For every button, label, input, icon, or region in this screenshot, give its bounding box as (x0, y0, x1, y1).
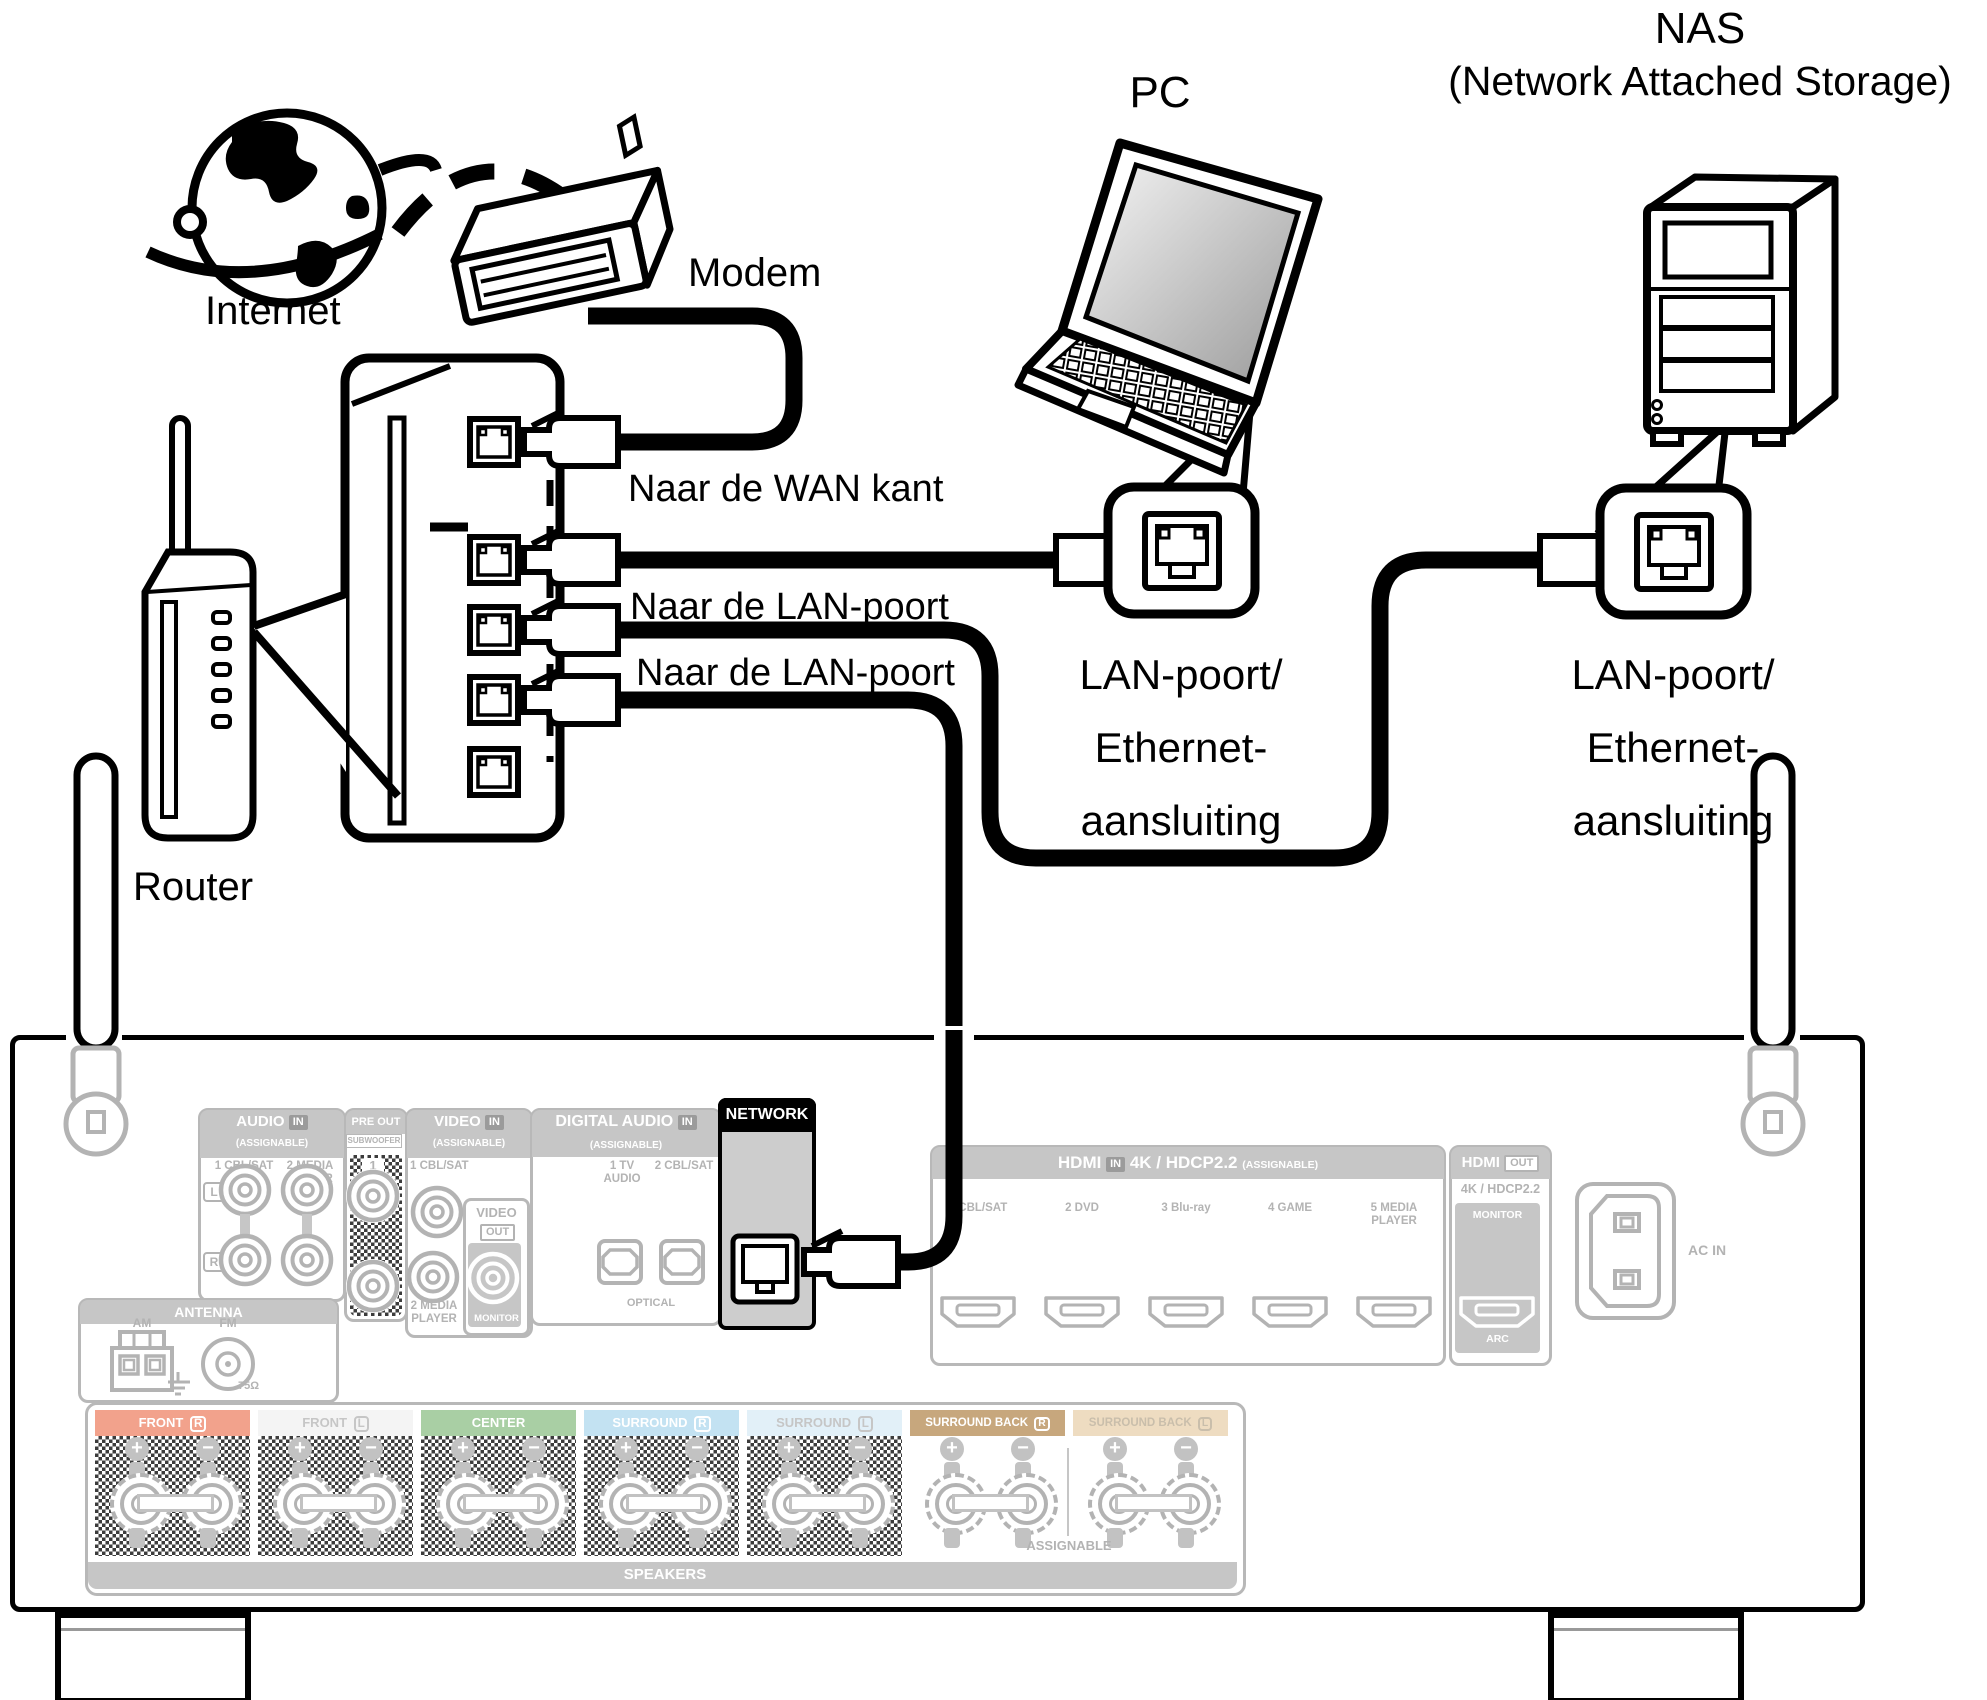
binding-post-cap: − (848, 1437, 872, 1461)
speaker-header-front-r: FRONT R (95, 1410, 250, 1436)
digital-audio-badge: IN (678, 1115, 697, 1130)
video-in-assignable: (ASSIGNABLE) (433, 1138, 505, 1149)
internet-label: Internet (205, 288, 341, 334)
hdmi-in-port-label-5: 5 MEDIA PLAYER (1342, 1202, 1446, 1228)
antenna-section: ANTENNA (78, 1298, 339, 1403)
audio-in2-label: 2 MEDIA PLAYER (280, 1160, 340, 1186)
post-link-bar (789, 1494, 866, 1512)
post-link-bar (626, 1494, 703, 1512)
speakers-assignable-label: ASSIGNABLE (910, 1538, 1228, 1553)
digital-in1-label: 1 TV AUDIO (592, 1160, 652, 1186)
hdmi-in-section: HDMI IN 4K / HDCP2.2 (ASSIGNABLE) (930, 1145, 1446, 1366)
binding-post-neck (363, 1528, 379, 1548)
optical-label: OPTICAL (605, 1297, 697, 1309)
post-link-bar (1115, 1494, 1192, 1512)
pre-out-2-label: 2 (362, 1294, 384, 1310)
speaker-terminals-center: +− (421, 1436, 576, 1556)
hdmi-out-spec: 4K / HDCP2.2 (1452, 1182, 1549, 1196)
video-out-title: VIDEO (466, 1205, 527, 1220)
plug-nas (1540, 529, 1634, 584)
hdmi-out-badge: OUT (1504, 1155, 1539, 1172)
hdmi-out-title: HDMI (1462, 1154, 1500, 1171)
speaker-terminals-surround-r: +− (584, 1436, 739, 1556)
antenna-am-label: AM (112, 1316, 172, 1330)
to-lan-label-1: Naar de LAN-poort (630, 584, 949, 630)
nas-subtitle: (Network Attached Storage) (1420, 58, 1980, 104)
binding-post-cap: + (451, 1437, 475, 1461)
pre-out-title: PRE OUT (346, 1110, 406, 1134)
modem-label: Modem (688, 250, 821, 296)
video-monitor-label: MONITOR (466, 1313, 527, 1324)
audio-in1-label: 1 CBL/SAT (204, 1160, 284, 1172)
binding-post-neck (200, 1528, 216, 1548)
video-out-subsection: VIDEO OUT MONITOR (463, 1198, 530, 1336)
nas-icon (1647, 177, 1835, 494)
plug-lan1 (524, 529, 618, 584)
post-link-bar (952, 1494, 1029, 1512)
hdmi-in-port-label-2: 2 DVD (1030, 1202, 1134, 1215)
binding-post-cap: − (359, 1437, 383, 1461)
router-icon (145, 418, 253, 838)
receiver-foot-left (55, 1612, 251, 1700)
router-ports (470, 419, 518, 795)
ac-in-label: AC IN (1688, 1242, 1758, 1258)
pc-callout-label: LAN-poort/ Ethernet- aansluiting (1056, 638, 1306, 857)
digital-in2-label: 2 CBL/SAT (652, 1160, 716, 1172)
internet-globe-icon (148, 113, 436, 303)
antenna-ohm-label: 75Ω (238, 1380, 278, 1392)
plug-wan (524, 411, 618, 466)
wireless-link-dashes (398, 171, 600, 232)
audio-left-badge: L (203, 1182, 225, 1202)
digital-audio-assignable: (ASSIGNABLE) (590, 1140, 662, 1151)
video-in-title: VIDEO (434, 1113, 481, 1130)
binding-post-cap: + (940, 1437, 964, 1461)
audio-in-badge: IN (289, 1115, 308, 1130)
binding-post-cap: + (777, 1437, 801, 1461)
binding-post-neck (618, 1528, 634, 1548)
hdmi-in-port-label-1: 1 CBL/SAT (926, 1202, 1030, 1215)
audio-in-section: AUDIO IN (ASSIGNABLE) (198, 1108, 346, 1302)
modem-icon (432, 115, 680, 324)
network-connection-diagram: AUDIO IN (ASSIGNABLE) 1 CBL/SAT 2 MEDIA … (0, 0, 1987, 1700)
pre-out-1-label: 1 (362, 1158, 384, 1174)
hdmi-out-section: HDMI OUT 4K / HDCP2.2 MONITOR ARC (1449, 1145, 1552, 1366)
speakers-footer-label: SPEAKERS (600, 1566, 730, 1583)
subwoofer-label: SUBWOOFER (346, 1134, 402, 1148)
video-in-badge: IN (485, 1115, 504, 1130)
router-rear-icon (254, 358, 560, 838)
pc-laptop-icon (1018, 143, 1318, 494)
nas-callout-label: LAN-poort/ Ethernet- aansluiting (1548, 638, 1798, 857)
hdmi-in-badge: IN (1106, 1157, 1125, 1172)
binding-post-cap: + (614, 1437, 638, 1461)
hdmi-out-arc-label: ARC (1455, 1333, 1540, 1345)
assignable-divider (1067, 1448, 1069, 1536)
pc-lan-port-icon (1108, 487, 1255, 614)
binding-post-neck (689, 1528, 705, 1548)
network-title: NETWORK (718, 1098, 816, 1132)
speaker-terminals-surround-l: +− (747, 1436, 902, 1556)
speaker-header-front-l: FRONT L (258, 1410, 413, 1436)
binding-post-neck (526, 1528, 542, 1548)
binding-post-cap: + (288, 1437, 312, 1461)
speaker-terminals-front-r: +− (95, 1436, 250, 1556)
plug-lan3 (524, 669, 618, 724)
audio-right-badge: R (203, 1252, 225, 1272)
to-lan-label-2: Naar de LAN-poort (636, 650, 955, 696)
network-section (718, 1098, 816, 1330)
plug-pc (1056, 529, 1150, 584)
to-wan-label: Naar de WAN kant (628, 466, 943, 512)
speaker-header-surround-back-r: SURROUND BACK R (910, 1410, 1065, 1436)
plug-lan2 (524, 599, 618, 654)
speaker-header-surround-r: SURROUND R (584, 1410, 739, 1436)
binding-post-neck (292, 1528, 308, 1548)
binding-post-neck (852, 1528, 868, 1548)
binding-post-cap: − (196, 1437, 220, 1461)
nas-lan-port-icon (1600, 488, 1747, 615)
speaker-terminals-front-l: +− (258, 1436, 413, 1556)
post-link-bar (463, 1494, 540, 1512)
binding-post-cap: − (522, 1437, 546, 1461)
binding-post-neck (455, 1528, 471, 1548)
video-out-badge: OUT (480, 1224, 515, 1241)
audio-in-title: AUDIO (236, 1113, 284, 1130)
router-label: Router (133, 864, 253, 910)
antenna-fm-label: FM (198, 1316, 258, 1330)
hdmi-in-spec: 4K / HDCP2.2 (1130, 1153, 1238, 1172)
speaker-header-surround-back-l: SURROUND BACK L (1073, 1410, 1228, 1436)
pc-callout-pointer (1157, 400, 1251, 494)
binding-post-cap: + (125, 1437, 149, 1461)
pc-label: PC (1100, 70, 1220, 116)
post-link-bar (300, 1494, 377, 1512)
audio-in-assignable: (ASSIGNABLE) (236, 1138, 308, 1149)
binding-post-cap: − (1174, 1437, 1198, 1461)
hdmi-in-port-label-3: 3 Blu-ray (1134, 1202, 1238, 1215)
hdmi-in-title: HDMI (1058, 1153, 1101, 1172)
receiver-foot-right (1548, 1612, 1744, 1700)
video-in2-label: 2 MEDIA PLAYER (406, 1300, 462, 1326)
hdmi-in-assignable: (ASSIGNABLE) (1242, 1159, 1318, 1171)
binding-post-cap: − (1011, 1437, 1035, 1461)
nas-title: NAS (1580, 6, 1820, 52)
digital-audio-section: DIGITAL AUDIO IN (ASSIGNABLE) (530, 1108, 722, 1326)
binding-post-neck (781, 1528, 797, 1548)
cable-modem-wan (588, 316, 794, 442)
binding-post-cap: + (1103, 1437, 1127, 1461)
binding-post-neck (129, 1528, 145, 1548)
binding-post-cap: − (685, 1437, 709, 1461)
speaker-header-center: CENTER (421, 1410, 576, 1436)
hdmi-out-monitor-label: MONITOR (1455, 1209, 1540, 1221)
digital-audio-title: DIGITAL AUDIO (555, 1113, 673, 1130)
speaker-header-surround-l: SURROUND L (747, 1410, 902, 1436)
nas-callout-pointer (1648, 424, 1726, 494)
hdmi-in-port-label-4: 4 GAME (1238, 1202, 1342, 1215)
video-in1-label: 1 CBL/SAT (406, 1160, 490, 1172)
post-link-bar (137, 1494, 214, 1512)
